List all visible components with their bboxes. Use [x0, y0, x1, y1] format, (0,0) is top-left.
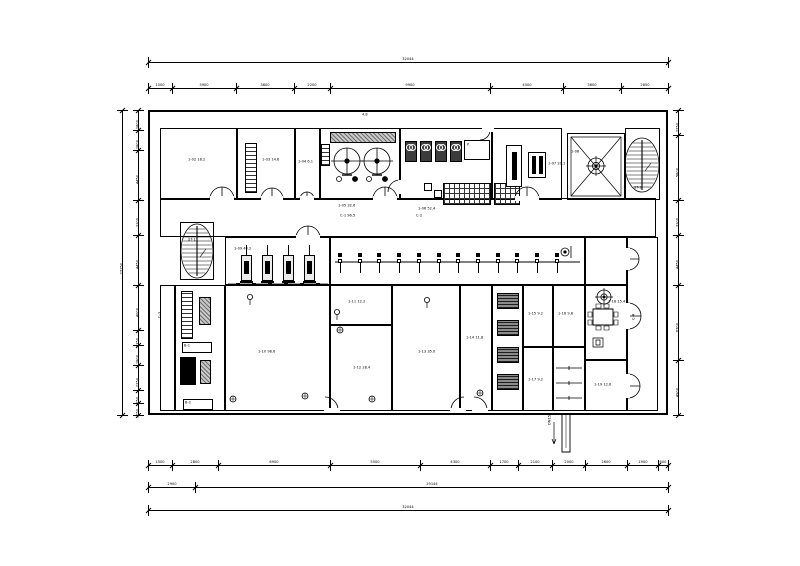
dimension-text: 1700	[499, 459, 508, 464]
door-gap	[373, 196, 397, 201]
valve-icon	[377, 253, 381, 257]
boiler-unit-icon	[450, 141, 462, 162]
line	[588, 312, 592, 317]
door-gap	[625, 374, 630, 398]
dimension-text: 2250	[135, 378, 140, 387]
circle-icon	[564, 251, 566, 253]
dimension-ext	[673, 200, 684, 201]
door-gap	[210, 196, 234, 201]
line	[586, 156, 606, 176]
dimension-text: 4300	[450, 459, 459, 464]
pump-stem	[267, 245, 268, 255]
dimension-text: 1050	[135, 409, 140, 418]
pipe-node	[268, 283, 272, 286]
dimension-text: 600	[660, 459, 667, 464]
valve-stem	[439, 263, 440, 273]
pump-stem	[309, 245, 310, 255]
valve-icon	[476, 253, 480, 257]
dimension-ext	[172, 460, 173, 471]
transformer-icon	[497, 347, 519, 363]
dimension-ext	[133, 235, 144, 236]
circle-icon	[375, 159, 379, 163]
dimension-text: 2100	[530, 459, 539, 464]
dimension-text: 2850	[640, 82, 649, 87]
valve-icon	[358, 253, 362, 257]
dimension-text: 1800	[135, 140, 140, 149]
dimension-text: 32044	[402, 504, 413, 509]
dimension-text: 3100	[135, 218, 140, 227]
valve-stem	[557, 263, 558, 273]
dimension-ext	[148, 83, 149, 94]
boiler-unit-icon	[420, 141, 432, 162]
dimension-text: 27150	[119, 263, 124, 274]
pump-stem	[246, 245, 247, 255]
circle-icon	[353, 177, 358, 182]
valve-stem	[517, 263, 518, 273]
dimension-text: 4450	[135, 175, 140, 184]
dimension-ext	[330, 460, 331, 471]
door-gap	[625, 248, 630, 270]
transformer-icon	[497, 293, 519, 309]
dimension-ext	[673, 235, 684, 236]
dimension-ext	[668, 83, 669, 94]
line	[593, 309, 613, 325]
dimension-ext	[133, 110, 144, 111]
circle-icon	[247, 294, 252, 299]
dimension-ext	[172, 83, 173, 94]
line	[593, 338, 603, 347]
dimension-ext	[133, 285, 144, 286]
dimension-text: 3600	[587, 82, 596, 87]
dimension-text: 4900	[675, 388, 680, 397]
valve-stem	[379, 263, 380, 273]
dimension-text: 4500	[522, 82, 531, 87]
dimension-ext	[668, 460, 669, 471]
dimension-line	[148, 487, 668, 488]
dimension-ext	[490, 460, 491, 471]
valve-stem	[340, 263, 341, 273]
circle-icon	[345, 159, 349, 163]
line	[595, 288, 613, 306]
dimension-ext	[673, 415, 684, 416]
dimension-ext	[117, 415, 128, 416]
dimension-ext	[133, 390, 144, 391]
line	[604, 326, 609, 330]
line	[614, 320, 618, 325]
dimension-text: 4450	[675, 260, 680, 269]
dimension-ext	[673, 285, 684, 286]
floor-plan: P. 4.8 1-02 18.2 1-03 14.6 1-04 6.1 1-05…	[0, 0, 800, 566]
circle-icon	[367, 177, 372, 182]
dimension-ext	[133, 150, 144, 151]
circle-icon	[337, 177, 342, 182]
door-gap	[261, 196, 283, 201]
dimension-ext	[490, 83, 491, 94]
door-gap	[515, 196, 539, 201]
dimension-ext	[148, 460, 149, 471]
dimension-text: 1150	[135, 397, 140, 406]
valve-stem	[458, 263, 459, 273]
dimension-ext	[621, 83, 622, 94]
dimension-ext	[673, 135, 684, 136]
pump-stem	[288, 245, 289, 255]
valve-icon	[535, 253, 539, 257]
line	[596, 304, 601, 308]
dimension-text: 29144	[426, 481, 437, 486]
boiler-unit-icon	[435, 141, 447, 162]
valve-icon	[555, 253, 559, 257]
transformer-icon	[497, 374, 519, 390]
valve-stem	[360, 263, 361, 273]
dimension-text: 3900	[199, 82, 208, 87]
dimension-line	[148, 62, 668, 63]
dimension-ext	[518, 460, 519, 471]
dimension-text: 4000	[135, 308, 140, 317]
dimension-ext	[673, 110, 684, 111]
door-gap	[300, 196, 314, 201]
circle-icon	[424, 297, 429, 302]
transformer-icon	[497, 320, 519, 336]
pump-base	[303, 281, 316, 283]
dimension-ext	[420, 460, 421, 471]
dimension-ext	[236, 83, 237, 94]
valve-icon	[515, 253, 519, 257]
dimension-ext	[133, 200, 144, 201]
dimension-text: 9900	[405, 82, 414, 87]
valve-icon	[417, 253, 421, 257]
dimension-text: 1500	[155, 82, 164, 87]
dimension-ext	[133, 365, 144, 366]
dimension-ext	[148, 482, 149, 493]
pipe-node	[316, 283, 320, 286]
dimension-text: 5500	[370, 459, 379, 464]
dimension-ext	[668, 505, 669, 516]
door-gap	[450, 408, 466, 413]
dimension-text: 2600	[601, 459, 610, 464]
dimension-text: 5800	[675, 168, 680, 177]
dimension-ext	[563, 83, 564, 94]
dimension-ext	[117, 110, 128, 111]
line	[552, 422, 556, 444]
dimension-ext	[673, 360, 684, 361]
dimension-ext	[668, 482, 669, 493]
line	[614, 312, 618, 317]
dimension-ext	[218, 460, 219, 471]
dimension-text: 32044	[402, 56, 413, 61]
pipe-node	[300, 283, 304, 286]
circle-icon	[383, 177, 388, 182]
dimension-text: 3600	[260, 82, 269, 87]
pump-core	[307, 261, 312, 274]
circle-icon	[334, 309, 339, 314]
valve-icon	[496, 253, 500, 257]
pipe-node	[284, 283, 288, 286]
dimension-text: 3100	[675, 218, 680, 227]
door-gap	[324, 408, 340, 413]
valve-stem	[478, 263, 479, 273]
pump-core	[286, 261, 291, 274]
valve-stem	[498, 263, 499, 273]
valve-icon	[338, 253, 342, 257]
door-gap	[625, 303, 630, 329]
dimension-ext	[294, 83, 295, 94]
dimension-ext	[148, 505, 149, 516]
dimension-text: 1500	[155, 459, 164, 464]
valve-icon	[437, 253, 441, 257]
valve-stem	[399, 263, 400, 273]
dimension-text: 2800	[190, 459, 199, 464]
line	[588, 320, 592, 325]
dimension-ext	[133, 130, 144, 131]
door-gap	[296, 235, 320, 240]
dimension-ext	[195, 482, 196, 493]
dimension-ext	[668, 57, 669, 68]
pump-core	[265, 261, 270, 274]
dimension-ext	[148, 57, 149, 68]
valve-stem	[537, 263, 538, 273]
line	[604, 304, 609, 308]
dimension-text: 2000	[564, 459, 573, 464]
dimension-text: 2200	[307, 82, 316, 87]
pipe-node	[252, 283, 256, 286]
pipe-node	[236, 283, 240, 286]
dimension-ext	[627, 460, 628, 471]
valve-icon	[456, 253, 460, 257]
dimension-ext	[552, 460, 553, 471]
dimension-line	[148, 88, 668, 89]
valve-icon	[397, 253, 401, 257]
valve-stem	[419, 263, 420, 273]
dimension-text: 6900	[269, 459, 278, 464]
dimension-text: 1900	[638, 459, 647, 464]
dimension-text: 1800	[135, 120, 140, 129]
pump-core	[244, 261, 249, 274]
boiler-unit-icon	[405, 141, 417, 162]
dimension-text: 1350	[135, 338, 140, 347]
door-gap	[472, 408, 488, 413]
dimension-text: 2900	[167, 481, 176, 486]
dimension-ext	[330, 83, 331, 94]
dimension-text: 1800	[135, 355, 140, 364]
dimension-text: 6700	[675, 323, 680, 332]
dimension-line	[148, 465, 668, 466]
dimension-text: 2250	[675, 123, 680, 132]
dimension-ext	[585, 460, 586, 471]
door-gap	[482, 128, 494, 132]
dimension-text: 4450	[135, 260, 140, 269]
line	[596, 326, 601, 330]
dimension-line	[148, 510, 668, 511]
dimension-ext	[133, 330, 144, 331]
door-gap	[398, 180, 403, 194]
